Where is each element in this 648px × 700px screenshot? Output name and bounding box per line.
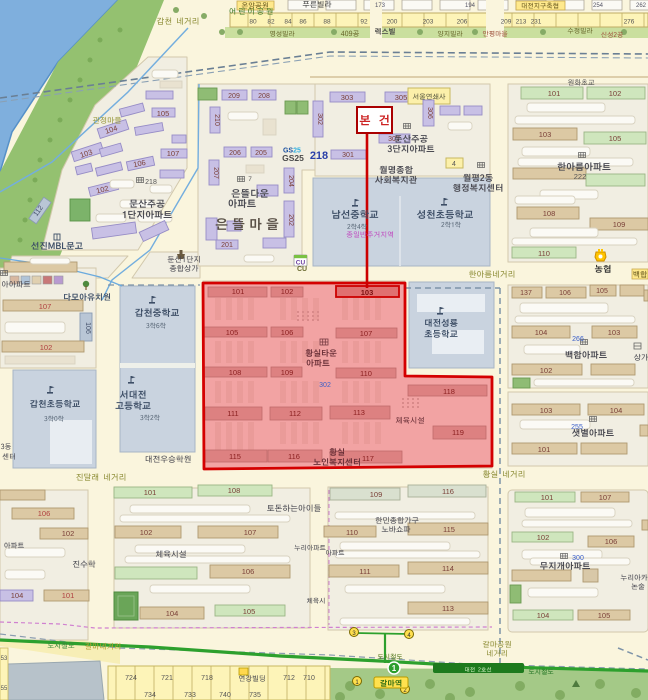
svg-text:116: 116 <box>442 487 454 496</box>
svg-text:734: 734 <box>144 692 156 699</box>
svg-text:101: 101 <box>232 287 245 296</box>
svg-text:111: 111 <box>359 567 370 576</box>
svg-text:201: 201 <box>221 242 233 249</box>
svg-text:82: 82 <box>267 19 275 26</box>
svg-text:204: 204 <box>287 175 294 187</box>
svg-text:7: 7 <box>248 176 252 183</box>
svg-text:302: 302 <box>316 113 323 125</box>
svg-text:111: 111 <box>227 409 238 418</box>
svg-text:103: 103 <box>361 288 374 297</box>
svg-text:104: 104 <box>166 609 179 618</box>
svg-text:106: 106 <box>38 509 51 518</box>
svg-text:101: 101 <box>144 488 157 497</box>
svg-text:GS25: GS25 <box>282 153 304 163</box>
svg-text:CU: CU <box>297 266 307 273</box>
svg-text:84: 84 <box>284 19 292 26</box>
svg-text:101: 101 <box>548 89 561 98</box>
svg-text:116: 116 <box>288 452 300 461</box>
svg-text:222: 222 <box>574 172 587 181</box>
svg-text:118: 118 <box>443 387 455 396</box>
svg-text:102: 102 <box>62 529 75 538</box>
svg-text:105: 105 <box>243 607 256 616</box>
svg-text:108: 108 <box>229 368 242 377</box>
svg-text:104: 104 <box>610 406 623 415</box>
svg-text:306: 306 <box>426 107 433 119</box>
svg-text:109: 109 <box>613 220 626 229</box>
svg-text:114: 114 <box>442 564 454 573</box>
svg-text:86: 86 <box>299 19 307 26</box>
svg-text:137: 137 <box>520 290 532 297</box>
svg-text:55: 55 <box>1 686 8 692</box>
svg-text:254: 254 <box>593 3 604 9</box>
svg-text:740: 740 <box>219 692 231 699</box>
svg-text:103: 103 <box>539 130 552 139</box>
svg-text:733: 733 <box>184 692 196 699</box>
svg-text:266: 266 <box>572 336 584 343</box>
svg-text:724: 724 <box>125 675 137 682</box>
svg-text:105: 105 <box>226 328 239 337</box>
svg-text:102: 102 <box>281 287 294 296</box>
svg-text:1: 1 <box>392 664 397 673</box>
svg-text:173: 173 <box>375 3 386 9</box>
svg-text:101: 101 <box>541 493 554 502</box>
svg-text:105: 105 <box>157 109 170 118</box>
svg-text:109: 109 <box>281 368 294 377</box>
svg-text:300: 300 <box>572 555 584 562</box>
svg-text:209: 209 <box>501 19 512 26</box>
svg-text:301: 301 <box>342 152 354 159</box>
svg-text:104: 104 <box>535 328 548 337</box>
svg-text:110: 110 <box>360 369 372 378</box>
svg-text:105: 105 <box>596 288 608 295</box>
svg-text:104: 104 <box>537 611 550 620</box>
svg-text:203: 203 <box>423 19 434 26</box>
svg-text:101: 101 <box>62 591 75 600</box>
svg-text:110: 110 <box>346 528 358 537</box>
svg-text:115: 115 <box>443 525 455 534</box>
svg-text:80: 80 <box>249 19 257 26</box>
svg-text:102: 102 <box>537 533 550 542</box>
svg-text:113: 113 <box>442 604 454 613</box>
svg-text:92: 92 <box>360 19 368 26</box>
svg-text:107: 107 <box>167 149 180 158</box>
svg-text:106: 106 <box>242 567 255 576</box>
svg-text:108: 108 <box>228 486 241 495</box>
svg-text:88: 88 <box>323 19 331 26</box>
svg-text:194: 194 <box>465 3 476 9</box>
svg-text:231: 231 <box>531 19 542 26</box>
svg-text:303: 303 <box>341 93 354 102</box>
svg-text:115: 115 <box>229 452 241 461</box>
svg-text:113: 113 <box>353 408 365 417</box>
svg-text:112: 112 <box>289 409 301 418</box>
svg-text:210: 210 <box>213 114 220 126</box>
svg-text:102: 102 <box>40 343 53 352</box>
svg-text:206: 206 <box>229 150 241 157</box>
svg-text:305: 305 <box>395 93 408 102</box>
svg-text:117: 117 <box>362 454 374 463</box>
svg-text:103: 103 <box>608 328 621 337</box>
svg-text:107: 107 <box>244 528 257 537</box>
svg-text:213: 213 <box>516 19 527 26</box>
svg-text:718: 718 <box>201 675 213 682</box>
svg-text:106: 106 <box>605 537 618 546</box>
svg-text:276: 276 <box>624 19 635 26</box>
svg-text:105: 105 <box>598 611 611 620</box>
svg-text:262: 262 <box>636 3 647 9</box>
svg-text:107: 107 <box>39 302 52 311</box>
svg-text:105: 105 <box>609 134 622 143</box>
svg-text:205: 205 <box>255 150 267 157</box>
svg-text:104: 104 <box>11 591 24 600</box>
svg-text:53: 53 <box>1 656 8 662</box>
svg-text:101: 101 <box>538 445 551 454</box>
svg-text:106: 106 <box>84 322 91 334</box>
svg-text:103: 103 <box>540 406 553 415</box>
svg-text:200: 200 <box>387 19 398 26</box>
svg-text:209: 209 <box>228 93 240 100</box>
svg-text:735: 735 <box>249 692 261 699</box>
svg-text:110: 110 <box>538 249 550 258</box>
svg-text:302: 302 <box>319 382 331 389</box>
svg-text:119: 119 <box>452 428 464 437</box>
svg-text:107: 107 <box>360 329 373 338</box>
svg-text:107: 107 <box>599 493 612 502</box>
svg-text:108: 108 <box>543 209 556 218</box>
svg-text:109: 109 <box>370 490 383 499</box>
svg-text:208: 208 <box>258 93 270 100</box>
svg-text:102: 102 <box>609 89 622 98</box>
svg-text:4: 4 <box>452 161 456 168</box>
svg-text:218: 218 <box>145 179 157 186</box>
svg-text:712: 712 <box>283 675 295 682</box>
svg-text:218: 218 <box>310 150 328 162</box>
svg-text:106: 106 <box>559 290 571 297</box>
svg-text:106: 106 <box>281 328 294 337</box>
svg-text:206: 206 <box>457 19 468 26</box>
svg-text:207: 207 <box>212 167 219 179</box>
svg-text:102: 102 <box>540 366 553 375</box>
svg-text:710: 710 <box>303 675 315 682</box>
svg-text:721: 721 <box>161 675 173 682</box>
svg-text:102: 102 <box>140 528 153 537</box>
svg-text:202: 202 <box>287 214 294 226</box>
